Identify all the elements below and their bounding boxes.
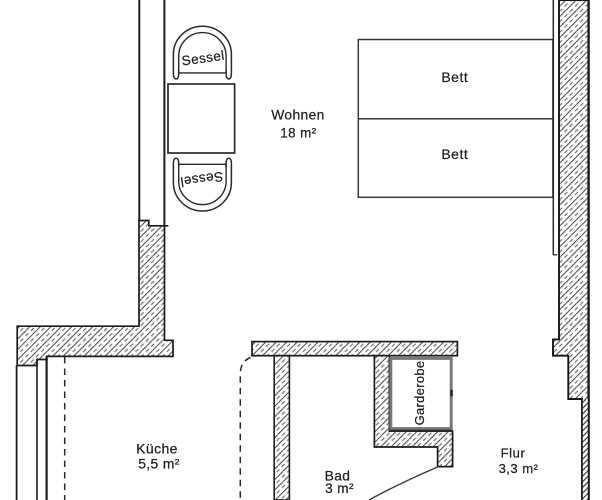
svg-text:Wohnen: Wohnen — [271, 108, 325, 123]
svg-text:Bett: Bett — [441, 146, 468, 162]
svg-text:Bett: Bett — [441, 69, 468, 85]
svg-text:Flur: Flur — [501, 446, 526, 461]
svg-text:3 m²: 3 m² — [325, 481, 354, 496]
svg-text:18 m²: 18 m² — [280, 125, 316, 140]
svg-text:3,3 m²: 3,3 m² — [499, 461, 539, 476]
svg-text:Garderobe: Garderobe — [412, 361, 427, 426]
svg-text:Küche: Küche — [136, 441, 178, 457]
svg-text:5,5 m²: 5,5 m² — [138, 457, 180, 472]
